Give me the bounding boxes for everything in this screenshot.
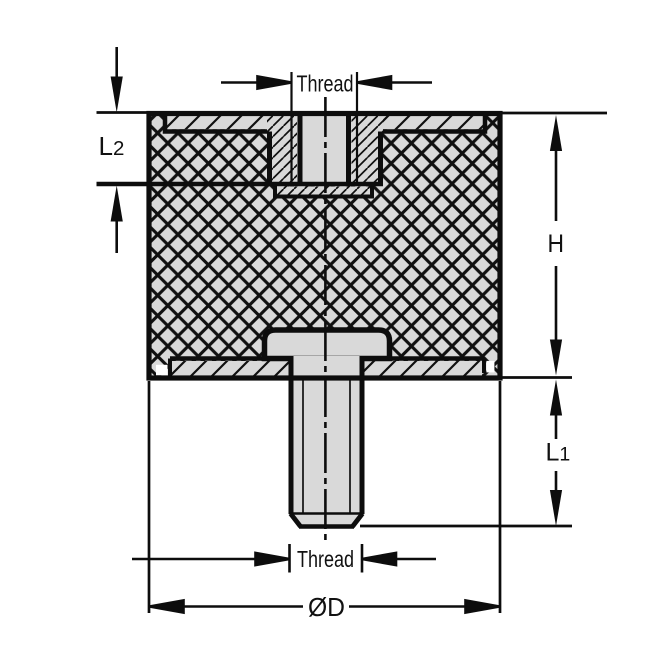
svg-text:ØD: ØD [308, 592, 345, 622]
svg-text:H: H [548, 230, 565, 258]
svg-text:L1: L1 [546, 439, 571, 467]
svg-text:Thread: Thread [297, 546, 354, 572]
svg-text:Thread: Thread [297, 71, 354, 97]
